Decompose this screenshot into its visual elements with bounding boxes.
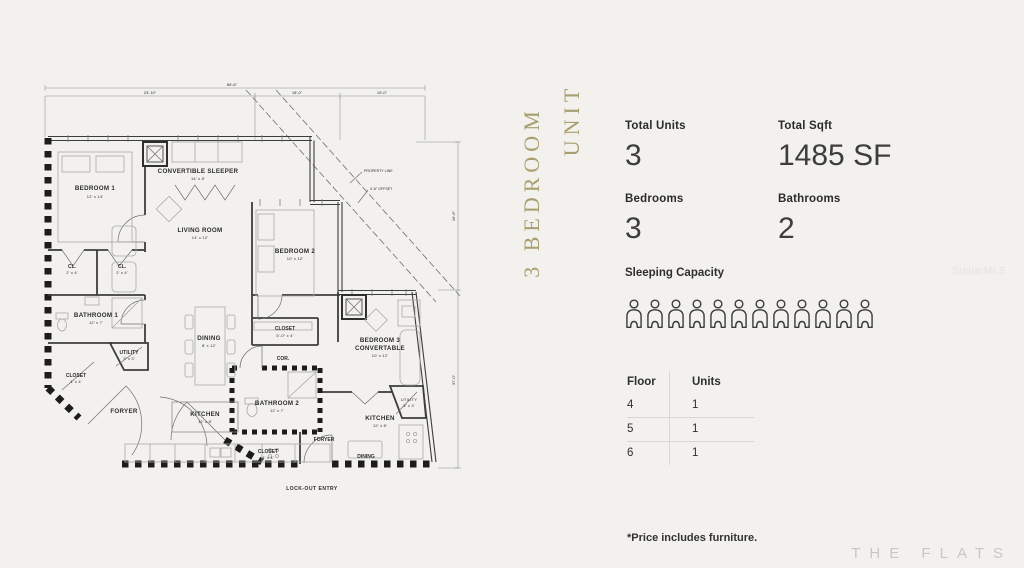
- stat-total-sqft-label: Total Sqft: [778, 120, 891, 132]
- room-label-living-room: LIVING ROOM: [178, 227, 223, 234]
- table-cell: 1: [670, 442, 755, 466]
- room-label-bathroom1: BATHROOM 1: [74, 312, 118, 319]
- person-icon: [792, 296, 812, 332]
- svg-text:12' x 8': 12' x 8': [198, 419, 212, 424]
- svg-text:12' x 7': 12' x 7': [270, 408, 284, 413]
- room-label-bedroom3: BEDROOM 3: [360, 337, 400, 344]
- table-header-row: Floor Units: [627, 371, 754, 394]
- unit-banner-line2: UNIT: [559, 84, 585, 157]
- table-cell: 4: [627, 394, 670, 418]
- stat-bathrooms-value: 2: [778, 212, 841, 246]
- stat-total-sqft-value: 1485 SF: [778, 139, 891, 173]
- property-line-label: PROPERTY LINE: [364, 169, 393, 173]
- svg-text:CONVERTABLE: CONVERTABLE: [355, 345, 405, 352]
- lockout-entry-label: LOCK-OUT ENTRY: [286, 486, 338, 492]
- room-label-bedroom1: BEDROOM 1: [75, 185, 115, 192]
- brand-logo: THE FLATS: [851, 545, 1012, 562]
- svg-text:14' x 12': 14' x 12': [192, 235, 208, 240]
- table-row: 41: [627, 394, 754, 418]
- room-label-kitchen2: KITCHEN: [365, 415, 395, 422]
- room-label-foyer2: FORYER: [314, 437, 335, 443]
- table-cell: 1: [670, 418, 755, 442]
- svg-text:3' x 3': 3' x 3': [403, 403, 415, 408]
- person-icon: [687, 296, 707, 332]
- stat-bedrooms-label: Bedrooms: [625, 193, 683, 205]
- stat-total-units-value: 3: [625, 139, 686, 173]
- room-label-bathroom2: BATHROOM 2: [255, 400, 299, 407]
- room-label-utility2: UTILITY: [401, 397, 417, 402]
- person-icon: [855, 296, 875, 332]
- svg-text:8' x 12': 8' x 12': [202, 343, 216, 348]
- elevator-shaft-icon: [342, 295, 366, 319]
- property-line: PROPERTY LINE 4'-6" OFFSET: [246, 90, 460, 302]
- svg-text:14' x 8': 14' x 8': [191, 176, 205, 181]
- person-icon: [729, 296, 749, 332]
- svg-text:2' x 4': 2' x 4': [66, 270, 78, 275]
- stat-bathrooms: Bathrooms 2: [778, 193, 841, 246]
- stat-bedrooms: Bedrooms 3: [625, 193, 683, 246]
- room-labels: BEDROOM 1 12' x 14' CONVERTIBLE SLEEPER …: [66, 168, 417, 492]
- door-arcs: [62, 185, 417, 463]
- room-label-closet2: CLOSET: [275, 326, 295, 332]
- dim-right-seg1: 16'-6": [451, 210, 456, 221]
- svg-text:5'-0" x 4': 5'-0" x 4': [276, 333, 293, 338]
- dim-right-seg2: 37'-0": [451, 374, 456, 385]
- person-icon: [750, 296, 770, 332]
- stat-total-sqft: Total Sqft 1485 SF: [778, 120, 891, 173]
- table-row: 61: [627, 442, 754, 466]
- svg-text:4' x 4': 4' x 4': [70, 379, 82, 384]
- room-label-bedroom2: BEDROOM 2: [275, 248, 315, 255]
- svg-text:2' x 4': 2' x 4': [116, 270, 128, 275]
- table-row: 51: [627, 418, 754, 442]
- stat-bathrooms-label: Bathrooms: [778, 193, 841, 205]
- stat-total-units-label: Total Units: [625, 120, 686, 132]
- table-header-floor: Floor: [627, 371, 670, 394]
- sleeping-capacity-icons: [624, 296, 875, 332]
- person-icon: [708, 296, 728, 332]
- room-label-corridor: COR.: [277, 356, 290, 362]
- room-label-dining2: DINING: [357, 454, 375, 460]
- room-label-kitchen1: KITCHEN: [190, 411, 220, 418]
- elevator-shaft-icon: [143, 142, 167, 166]
- svg-text:3' x 3': 3' x 3': [123, 356, 135, 361]
- svg-text:12' x 14': 12' x 14': [87, 194, 103, 199]
- person-icon: [813, 296, 833, 332]
- dim-top-total: 66'-6": [227, 82, 238, 87]
- room-label-convertible-sleeper: CONVERTIBLE SLEEPER: [158, 168, 239, 175]
- person-icon: [624, 296, 644, 332]
- person-icon: [771, 296, 791, 332]
- svg-text:10' x 12': 10' x 12': [372, 353, 388, 358]
- stat-total-units: Total Units 3: [625, 120, 686, 173]
- table-cell: 5: [627, 418, 670, 442]
- dim-top-seg3: 19'-0": [377, 90, 388, 95]
- sleeping-capacity-label: Sleeping Capacity: [625, 267, 724, 279]
- mls-watermark: StellarMLS: [952, 266, 1006, 277]
- unit-banner-line1: 3 BEDROOM: [519, 106, 545, 278]
- svg-text:4' x 4': 4' x 4': [262, 455, 274, 460]
- svg-text:12' x 8': 12' x 8': [373, 423, 387, 428]
- person-icon: [834, 296, 854, 332]
- table-cell: 1: [670, 394, 755, 418]
- person-icon: [666, 296, 686, 332]
- floor-plan: 66'-6" 23'-10" 18'-0" 19'-0" 16'-6" 37'-…: [0, 0, 500, 568]
- dim-top-seg1: 23'-10": [144, 90, 157, 95]
- dim-top-seg2: 18'-0": [292, 90, 303, 95]
- table-header-units: Units: [670, 371, 755, 394]
- price-footnote: *Price includes furniture.: [627, 532, 757, 544]
- room-label-dining1: DINING: [197, 335, 220, 342]
- table-cell: 6: [627, 442, 670, 466]
- svg-text:10' x 12': 10' x 12': [287, 256, 303, 261]
- svg-text:12' x 7': 12' x 7': [89, 320, 103, 325]
- stat-bedrooms-value: 3: [625, 212, 683, 246]
- room-label-foyer1: FORYER: [110, 408, 138, 415]
- person-icon: [645, 296, 665, 332]
- availability-table: Floor Units 415161: [627, 371, 754, 465]
- offset-label: 4'-6" OFFSET: [370, 187, 393, 191]
